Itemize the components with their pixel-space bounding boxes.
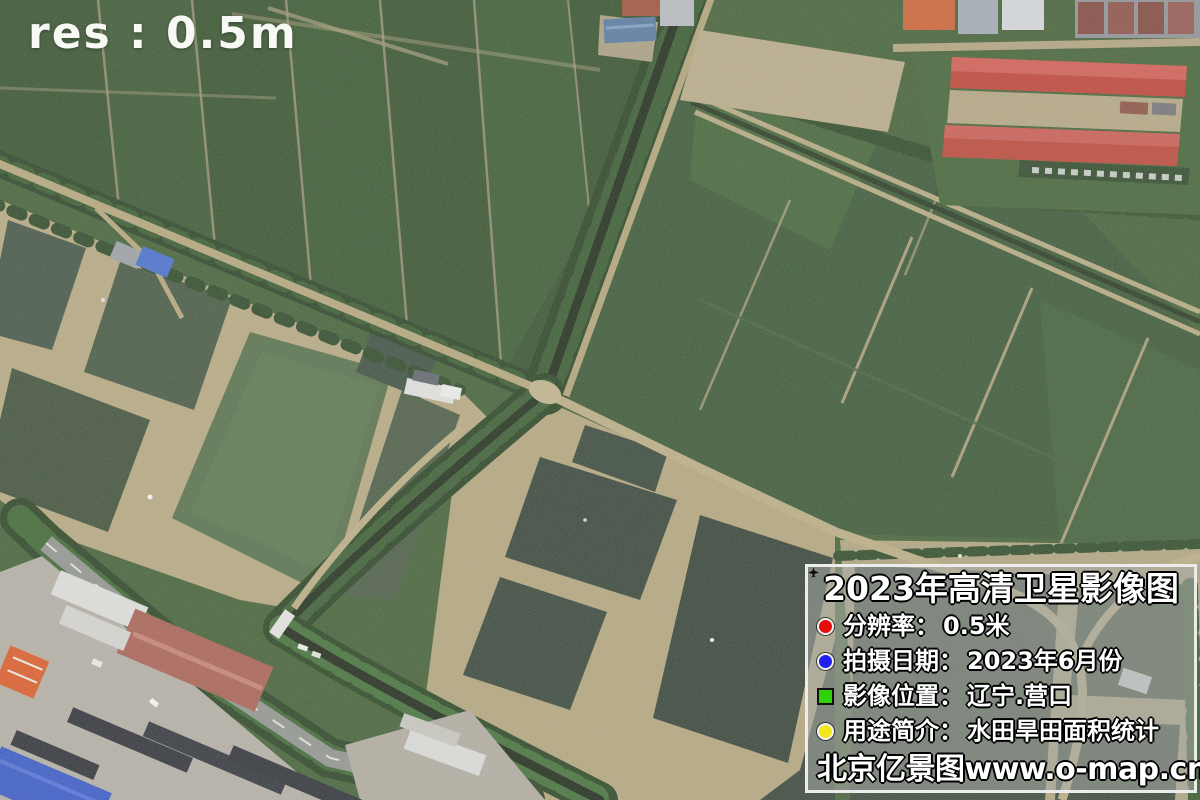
resolution-label: res : 0.5m: [28, 8, 298, 59]
panel-row-capture-date: 拍摄日期：2023年6月份: [817, 647, 1185, 676]
yellow-dot-icon: [817, 723, 834, 740]
panel-title: 2023年高清卫星影像图: [817, 570, 1185, 608]
row-label: 分辨率：: [843, 612, 939, 640]
row-label: 影像位置：: [843, 682, 963, 710]
row-label: 拍摄日期：: [843, 647, 963, 675]
info-panel: 2023年高清卫星影像图 分辨率：0.5米 拍摄日期：2023年6月份 影像位置…: [805, 564, 1197, 793]
panel-row-purpose: 用途简介：水田旱田面积统计: [817, 717, 1185, 746]
plane-glyph: [808, 567, 819, 578]
satellite-image: res : 0.5m 2023年高清卫星影像图 分辨率：0.5米 拍摄日期：20…: [0, 0, 1200, 800]
red-dot-icon: [817, 618, 834, 635]
row-label: 用途简介：: [843, 717, 963, 745]
blue-dot-icon: [817, 653, 834, 670]
panel-row-location: 影像位置：辽宁.营口: [817, 682, 1185, 711]
green-plane-icon: [817, 688, 834, 705]
watermark: 北京亿景图www.o-map.cn: [817, 752, 1185, 788]
row-value: 水田旱田面积统计: [967, 717, 1159, 745]
panel-row-resolution: 分辨率：0.5米: [817, 612, 1185, 641]
row-value: 2023年6月份: [967, 647, 1123, 675]
row-value: 0.5米: [943, 612, 1010, 640]
row-value: 辽宁.营口: [967, 682, 1072, 710]
